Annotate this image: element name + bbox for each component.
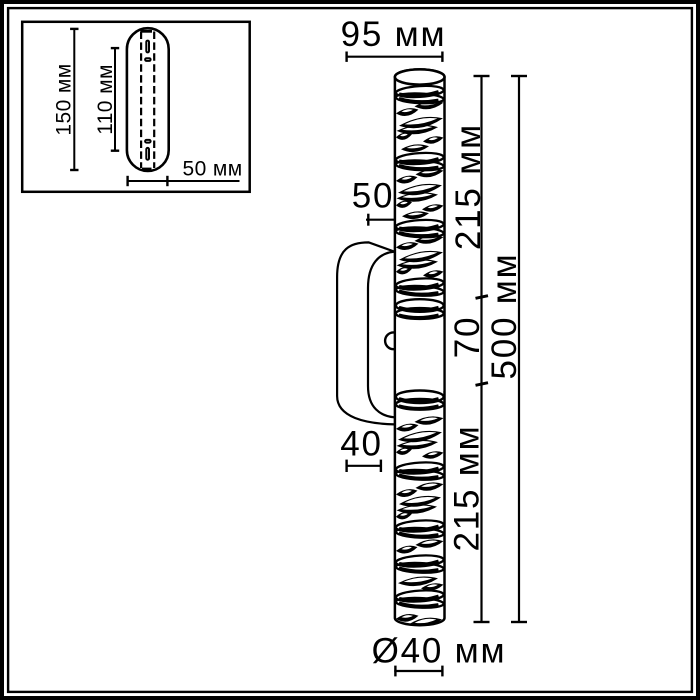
svg-text:50 мм: 50 мм — [183, 158, 243, 181]
svg-text:215 мм: 215 мм — [448, 424, 487, 551]
svg-text:Ø40 мм: Ø40 мм — [372, 631, 507, 670]
svg-text:150 мм: 150 мм — [53, 63, 76, 135]
svg-text:500 мм: 500 мм — [485, 252, 524, 379]
svg-text:215 мм: 215 мм — [449, 123, 488, 250]
svg-text:40: 40 — [340, 424, 383, 463]
svg-text:95 мм: 95 мм — [341, 15, 447, 54]
svg-text:110 мм: 110 мм — [94, 64, 117, 135]
svg-text:70: 70 — [448, 316, 487, 359]
svg-text:50: 50 — [352, 176, 395, 215]
